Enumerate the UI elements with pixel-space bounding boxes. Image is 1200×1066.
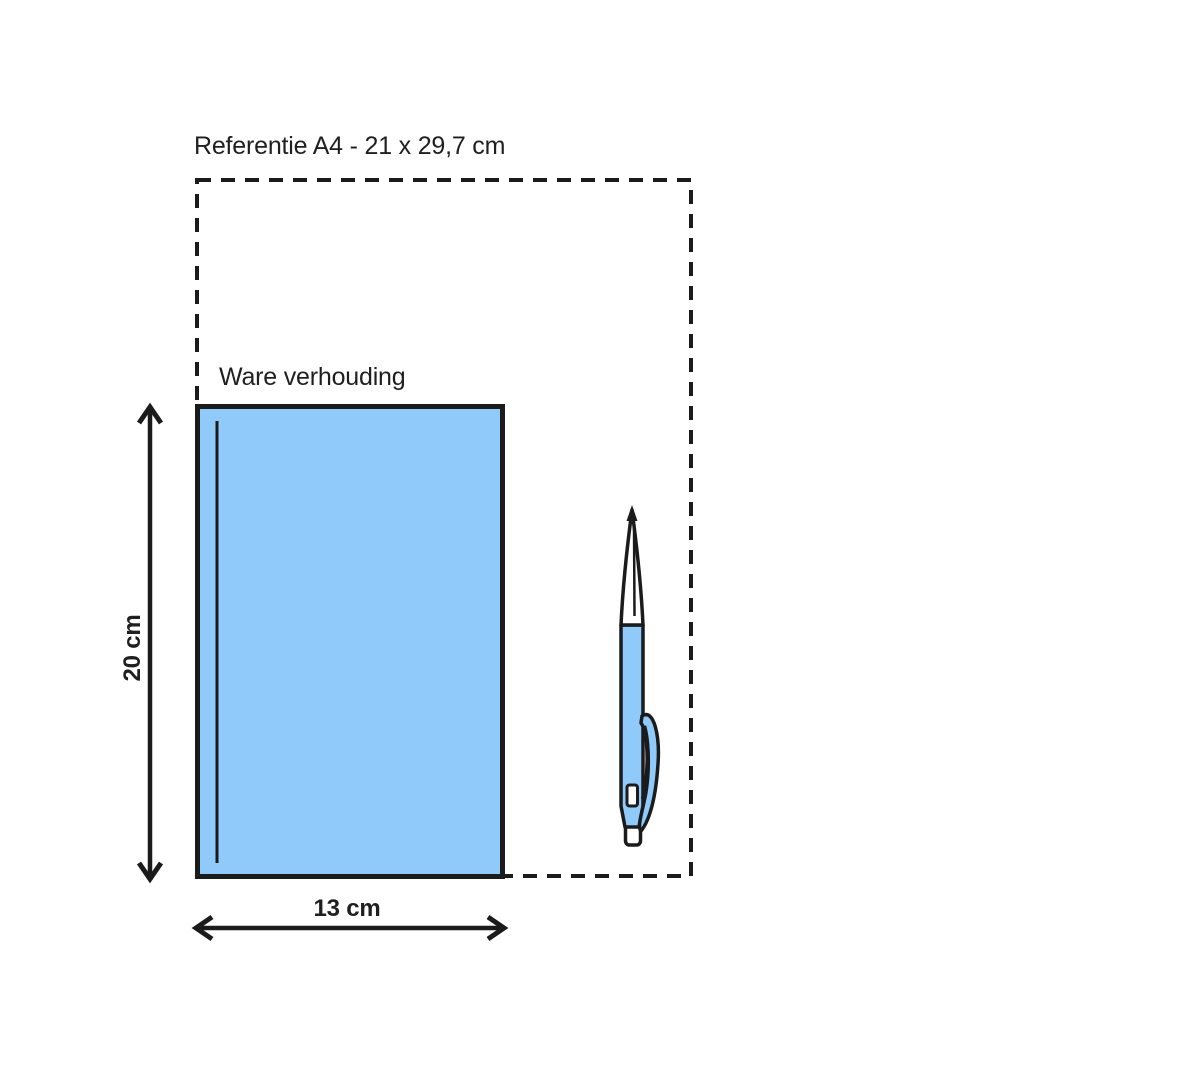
height-dimension-label: 20 cm: [120, 614, 146, 681]
pen-side-button: [627, 785, 638, 806]
size-comparison-diagram: Referentie A4 - 21 x 29,7 cm Ware verhou…: [0, 0, 1200, 1066]
product-rectangle: [198, 407, 503, 877]
pen-cone-line: [634, 524, 635, 616]
diagram-graphics: [0, 0, 1200, 1066]
width-dimension-label: 13 cm: [313, 896, 380, 922]
reference-size-label: Referentie A4 - 21 x 29,7 cm: [194, 133, 505, 161]
pen-cone: [621, 510, 643, 625]
product-rect: [198, 407, 503, 877]
pen-icon: [621, 505, 658, 845]
pen-writing-tip: [627, 505, 638, 521]
true-proportion-label: Ware verhouding: [219, 364, 405, 392]
